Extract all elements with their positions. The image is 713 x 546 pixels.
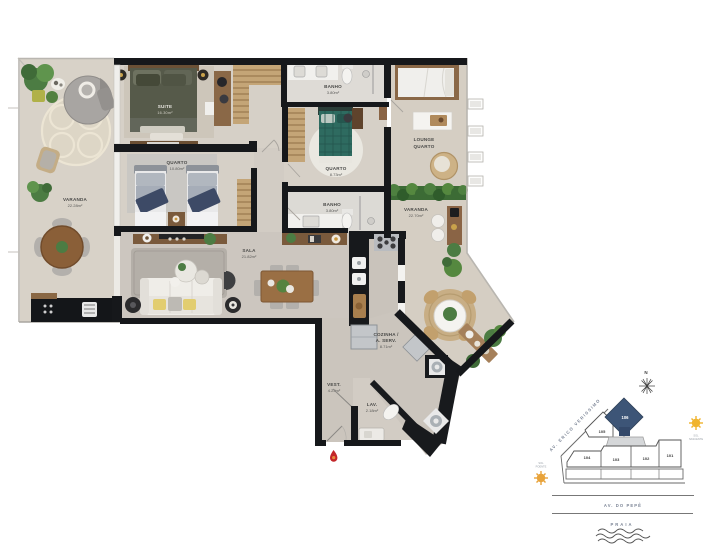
svg-text:NASCENTE: NASCENTE bbox=[689, 437, 703, 441]
svg-text:101: 101 bbox=[667, 453, 674, 458]
svg-text:21.82m²: 21.82m² bbox=[242, 254, 257, 259]
svg-text:106: 106 bbox=[622, 415, 630, 420]
svg-text:104: 104 bbox=[584, 455, 591, 460]
svg-text:105: 105 bbox=[599, 429, 606, 434]
svg-text:22.28m²: 22.28m² bbox=[68, 203, 83, 208]
svg-text:SOL: SOL bbox=[538, 461, 544, 465]
svg-text:QUARTO: QUARTO bbox=[325, 166, 346, 171]
svg-text:BANHO: BANHO bbox=[324, 84, 342, 89]
svg-text:N: N bbox=[644, 370, 647, 375]
svg-text:8.73m²: 8.73m² bbox=[330, 172, 343, 177]
svg-text:POENTE: POENTE bbox=[536, 465, 547, 469]
svg-text:SUITE: SUITE bbox=[158, 104, 173, 109]
svg-text:AV. DO PEPÊ: AV. DO PEPÊ bbox=[604, 503, 642, 508]
svg-text:10.80m²: 10.80m² bbox=[170, 166, 185, 171]
svg-text:SOL: SOL bbox=[693, 434, 699, 438]
svg-text:VEST.: VEST. bbox=[327, 382, 341, 387]
svg-text:3.80m²: 3.80m² bbox=[326, 208, 339, 213]
svg-text:SALA: SALA bbox=[242, 248, 256, 253]
svg-text:3.80m²: 3.80m² bbox=[327, 90, 340, 95]
svg-text:LOUNGE: LOUNGE bbox=[414, 137, 435, 142]
svg-text:COZINHA /: COZINHA / bbox=[373, 332, 399, 337]
svg-text:QUARTO: QUARTO bbox=[413, 144, 434, 149]
svg-text:16.30m²: 16.30m² bbox=[157, 111, 173, 115]
svg-text:8.71m²: 8.71m² bbox=[380, 344, 393, 349]
svg-text:VARANDA: VARANDA bbox=[404, 207, 429, 212]
svg-text:102: 102 bbox=[643, 456, 650, 461]
svg-text:22.70m²: 22.70m² bbox=[409, 213, 424, 218]
svg-text:103: 103 bbox=[613, 457, 620, 462]
svg-text:BANHO: BANHO bbox=[323, 202, 341, 207]
svg-text:QUARTO: QUARTO bbox=[166, 160, 187, 165]
svg-text:VARANDA: VARANDA bbox=[63, 197, 88, 202]
svg-text:A. SERV.: A. SERV. bbox=[376, 338, 397, 343]
svg-text:2.18m²: 2.18m² bbox=[366, 408, 379, 413]
svg-text:LAV.: LAV. bbox=[367, 402, 378, 407]
svg-text:PRAIA: PRAIA bbox=[610, 522, 633, 527]
